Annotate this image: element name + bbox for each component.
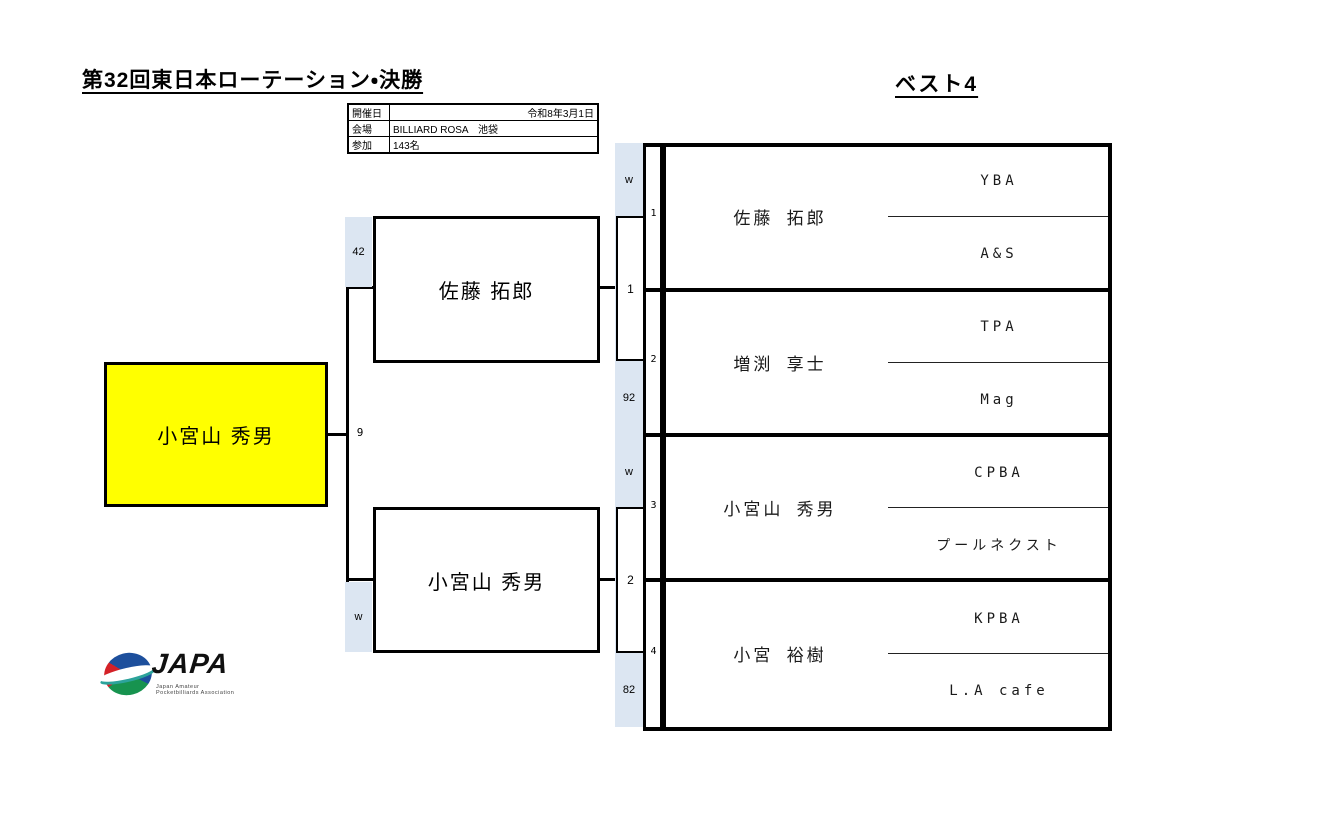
- player2-seed: 2: [646, 354, 661, 365]
- player2-affiliation-divider: [888, 362, 1108, 363]
- player3-affiliation-top: CPBA: [890, 464, 1108, 482]
- finalist2-box: 小宮山 秀男: [373, 507, 600, 653]
- list-row-divider-1: [643, 288, 1112, 292]
- best4-heading: ベスト4: [895, 68, 978, 98]
- player3-name: 小宮山 秀男: [670, 495, 890, 519]
- final-bracket-vline: [346, 287, 349, 583]
- player3-affiliation-divider: [888, 507, 1108, 508]
- player1-name: 佐藤 拓郎: [670, 204, 890, 228]
- page-title: 第32回東日本ローテーション・決勝: [82, 64, 423, 94]
- info-row-venue: 会場 BILLIARD ROSA 池袋: [348, 121, 598, 137]
- finalist1-score: 42: [352, 246, 364, 258]
- list-right-border: [1108, 143, 1112, 731]
- player3-affiliation-bottom: プールネクスト: [890, 536, 1108, 554]
- semifinal1-right-line: [600, 286, 616, 289]
- player4-affiliation-top: KPBA: [890, 610, 1108, 628]
- tournament-sheet: 第32回東日本ローテーション・決勝 ベスト4 開催日 令和8年3月1日 会場 B…: [0, 0, 1328, 824]
- info-row-entries: 参加 143名: [348, 137, 598, 154]
- player1-seed: 1: [646, 208, 661, 219]
- semifinal2-left-line: [346, 578, 373, 581]
- list-top-border: [643, 143, 1112, 147]
- player4-affiliation-bottom: L.A cafe: [890, 682, 1108, 700]
- player3-seed: 3: [646, 500, 661, 511]
- finalist1-name: 佐藤 拓郎: [376, 275, 597, 304]
- info-entries-label: 参加: [348, 137, 390, 154]
- finalist2-name: 小宮山 秀男: [376, 566, 597, 595]
- champion-name: 小宮山 秀男: [107, 420, 325, 449]
- semifinal2-match-number: 2: [627, 573, 634, 587]
- info-date-label: 開催日: [348, 104, 390, 121]
- finalist2-score-cell: w: [345, 582, 372, 652]
- player1-affiliation-top: YBA: [890, 172, 1108, 190]
- player3-semifinal-score: w: [615, 465, 643, 479]
- finalist1-score-cell: 42: [345, 217, 372, 287]
- player4-affiliation-divider: [888, 653, 1108, 654]
- japa-logo-subtext: Japan Amateur Pocketbilliards Associatio…: [156, 684, 234, 696]
- player2-affiliation-top: TPA: [890, 318, 1108, 336]
- finalist2-score: w: [355, 611, 363, 623]
- finalist1-box: 佐藤 拓郎: [373, 216, 600, 363]
- info-date-value: 令和8年3月1日: [390, 104, 599, 121]
- info-entries-value: 143名: [390, 137, 599, 154]
- seed-column-line: [643, 143, 646, 731]
- semifinal1-match-number: 1: [627, 282, 634, 296]
- player2-semifinal-score: 92: [615, 391, 643, 405]
- player1-affiliation-bottom: A&S: [890, 245, 1108, 263]
- player1-affiliation-divider: [888, 216, 1108, 217]
- semifinal2-right-line: [600, 578, 616, 581]
- final-connector-line: [328, 433, 347, 436]
- champion-box: 小宮山 秀男: [104, 362, 328, 507]
- player1-semifinal-score: w: [615, 173, 643, 187]
- player4-seed: 4: [646, 646, 661, 657]
- player4-name: 小宮 裕樹: [670, 641, 890, 665]
- list-left-border: [660, 143, 666, 731]
- semifinal1-match-box: 1: [616, 216, 643, 361]
- semifinal2-match-box: 2: [616, 507, 643, 653]
- japa-logo-subtext-line2: Pocketbilliards Association: [156, 690, 234, 696]
- final-match-number: 9: [352, 426, 368, 439]
- list-row-divider-3: [643, 578, 1112, 582]
- list-row-divider-2: [643, 433, 1112, 437]
- japa-logo-text: JAPA: [150, 648, 230, 680]
- player2-affiliation-bottom: Mag: [890, 391, 1108, 409]
- info-row-date: 開催日 令和8年3月1日: [348, 104, 598, 121]
- info-venue-label: 会場: [348, 121, 390, 137]
- list-bottom-border: [643, 727, 1112, 731]
- player2-name: 増渕 享士: [670, 350, 890, 374]
- event-info-table: 開催日 令和8年3月1日 会場 BILLIARD ROSA 池袋 参加 143名: [347, 103, 599, 154]
- player4-semifinal-score: 82: [615, 683, 643, 697]
- info-venue-value: BILLIARD ROSA 池袋: [390, 121, 599, 137]
